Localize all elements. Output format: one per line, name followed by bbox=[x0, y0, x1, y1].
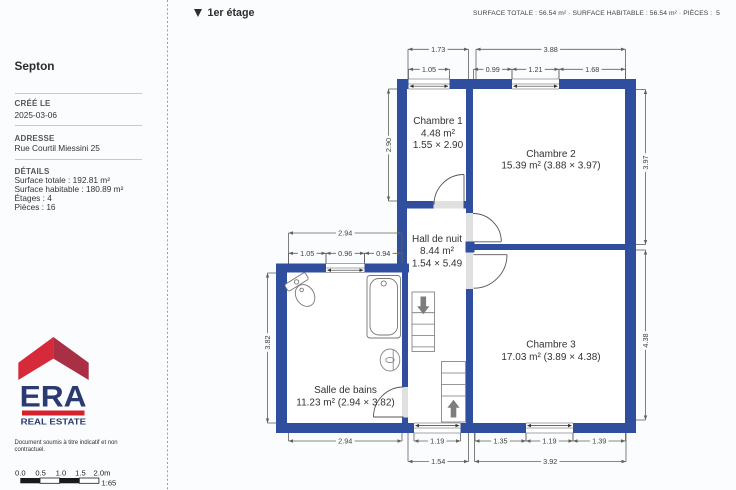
svg-text:1.55 × 2.90: 1.55 × 2.90 bbox=[413, 140, 464, 151]
svg-text:4.48 m²: 4.48 m² bbox=[421, 129, 456, 140]
svg-text:0.99: 0.99 bbox=[486, 65, 500, 74]
svg-text:1.54 × 5.49: 1.54 × 5.49 bbox=[412, 259, 463, 270]
svg-text:0.94: 0.94 bbox=[376, 249, 390, 258]
svg-text:Chambre 2: Chambre 2 bbox=[526, 149, 576, 160]
svg-text:1.05: 1.05 bbox=[300, 249, 314, 258]
svg-text:1.73: 1.73 bbox=[431, 45, 445, 54]
svg-text:8.44 m²: 8.44 m² bbox=[420, 246, 455, 257]
svg-text:3.88: 3.88 bbox=[544, 45, 558, 54]
svg-text:11.23 m² (2.94 × 3.82): 11.23 m² (2.94 × 3.82) bbox=[296, 398, 394, 409]
svg-text:3.92: 3.92 bbox=[543, 457, 557, 466]
svg-text:Hall de nuit: Hall de nuit bbox=[412, 234, 462, 245]
svg-text:1.39: 1.39 bbox=[592, 437, 606, 446]
svg-text:1.54: 1.54 bbox=[431, 457, 445, 466]
svg-text:17.03 m² (3.89 × 4.38): 17.03 m² (3.89 × 4.38) bbox=[501, 352, 600, 363]
svg-text:2.94: 2.94 bbox=[338, 229, 352, 238]
svg-text:0.96: 0.96 bbox=[338, 249, 352, 258]
svg-text:1.35: 1.35 bbox=[493, 437, 507, 446]
svg-text:1.19: 1.19 bbox=[542, 437, 556, 446]
svg-text:2.90: 2.90 bbox=[384, 138, 393, 152]
svg-text:1.21: 1.21 bbox=[528, 65, 542, 74]
svg-text:Salle de bains: Salle de bains bbox=[314, 385, 377, 396]
svg-text:Chambre 1: Chambre 1 bbox=[413, 116, 463, 127]
svg-text:1.19: 1.19 bbox=[430, 437, 444, 446]
svg-text:3.82: 3.82 bbox=[263, 335, 272, 349]
svg-text:Chambre 3: Chambre 3 bbox=[526, 340, 576, 351]
svg-text:15.39 m² (3.88 × 3.97): 15.39 m² (3.88 × 3.97) bbox=[501, 161, 600, 172]
svg-text:1.05: 1.05 bbox=[422, 65, 436, 74]
svg-text:1.68: 1.68 bbox=[585, 65, 599, 74]
svg-text:3.97: 3.97 bbox=[641, 155, 650, 169]
svg-text:2.94: 2.94 bbox=[338, 437, 352, 446]
svg-text:4.38: 4.38 bbox=[641, 333, 650, 347]
